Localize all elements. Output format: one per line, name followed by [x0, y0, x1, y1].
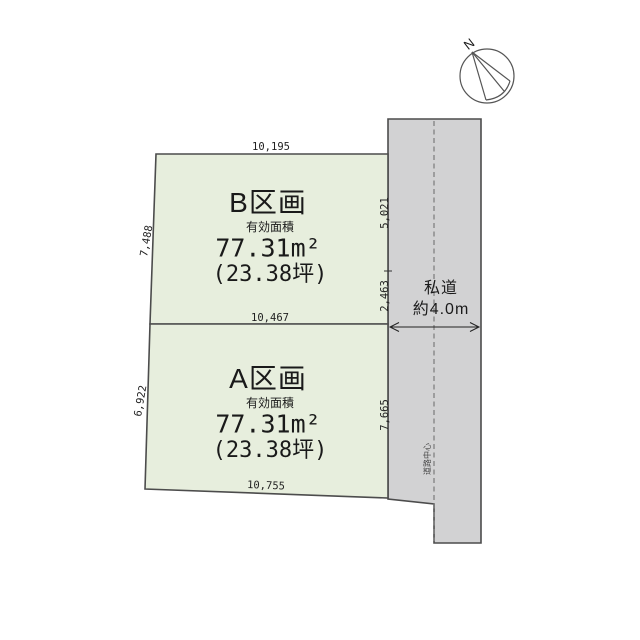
dim-parcel-b-right-lower: 2,463 [380, 280, 391, 312]
compass-circle [460, 49, 514, 103]
parcel-a-area-tsubo: (23.38坪) [213, 440, 328, 462]
dim-parcel-a-right: 7,665 [380, 399, 391, 431]
compass-icon [460, 49, 514, 103]
road-name: 私道 [424, 281, 458, 297]
dim-parcel-b-top: 10,195 [252, 142, 290, 153]
parcel-b-area-m2: 77.31m² [215, 236, 320, 261]
north-needle [472, 52, 510, 100]
parcel-a-area-caption: 有効面積 [246, 397, 294, 409]
road-centerline-label: 道路中心 [424, 443, 432, 475]
parcel-b-name: B区画 [229, 189, 307, 217]
dim-parcel-a-bottom: 10,755 [247, 480, 285, 492]
dim-parcel-b-right-upper: 5,021 [380, 197, 391, 229]
road-width-label: 約4.0m [413, 302, 470, 318]
land-plot-diagram: N B区画 有効面積 77.31m² (23.38坪) A区画 有効面積 77.… [0, 0, 640, 640]
parcel-a-area-m2: 77.31m² [215, 412, 320, 437]
parcel-a-name: A区画 [229, 365, 307, 393]
parcel-b-area-caption: 有効面積 [246, 221, 294, 233]
parcel-b-area-tsubo: (23.38坪) [213, 264, 328, 286]
plan-drawing [0, 0, 640, 640]
dim-parcel-a-top: 10,467 [251, 313, 289, 324]
